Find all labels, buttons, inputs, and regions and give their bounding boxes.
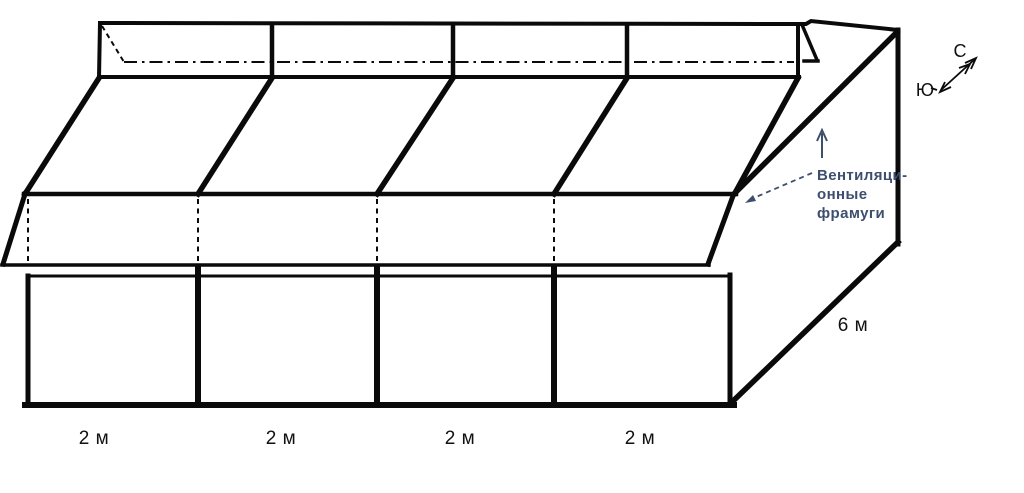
vent-band-left-edge — [3, 194, 25, 264]
vent-label-line1: Вентиляци- — [817, 167, 908, 184]
back-panel-left-edge — [99, 23, 100, 78]
compass: С Ю — [916, 41, 976, 100]
width-label-2: 2 м — [266, 428, 296, 449]
width-label-3: 2 м — [445, 428, 475, 449]
roof-divider — [377, 78, 453, 194]
compass-north-label: С — [954, 41, 967, 61]
vent-annotation-text: Вентиляци- онные фрамуги — [817, 167, 908, 222]
roof-divider — [554, 78, 627, 194]
hidden-corner-edge-dashed — [102, 26, 124, 62]
greenhouse-diagram: Вентиляци- онные фрамуги С Ю 2 м 2 м 2 м… — [0, 0, 1024, 493]
diagram-page: Вентиляци- онные фрамуги С Ю 2 м 2 м 2 м… — [0, 0, 1024, 493]
roof-left-edge — [25, 78, 99, 194]
compass-south-label: Ю — [916, 80, 934, 100]
depth-label: 6 м — [838, 315, 868, 336]
roof-divider — [198, 78, 272, 194]
corner-flap-edge — [803, 27, 817, 60]
vent-leader-arrowhead-icon — [745, 195, 756, 203]
vent-label-line3: фрамуги — [817, 205, 885, 222]
width-label-1: 2 м — [79, 428, 109, 449]
width-label-4: 2 м — [625, 428, 655, 449]
front-wall — [25, 267, 734, 405]
roof-slope — [24, 78, 798, 194]
side-wall-bottom-edge — [730, 242, 898, 404]
vent-band — [2, 194, 733, 265]
vent-label-line2: онные — [817, 186, 867, 203]
back-panel-top-edge — [100, 21, 898, 30]
vent-leader-line — [749, 173, 812, 200]
vent-band-right-edge — [708, 196, 733, 264]
back-panel — [99, 21, 898, 78]
roof-right-edge — [735, 78, 798, 193]
